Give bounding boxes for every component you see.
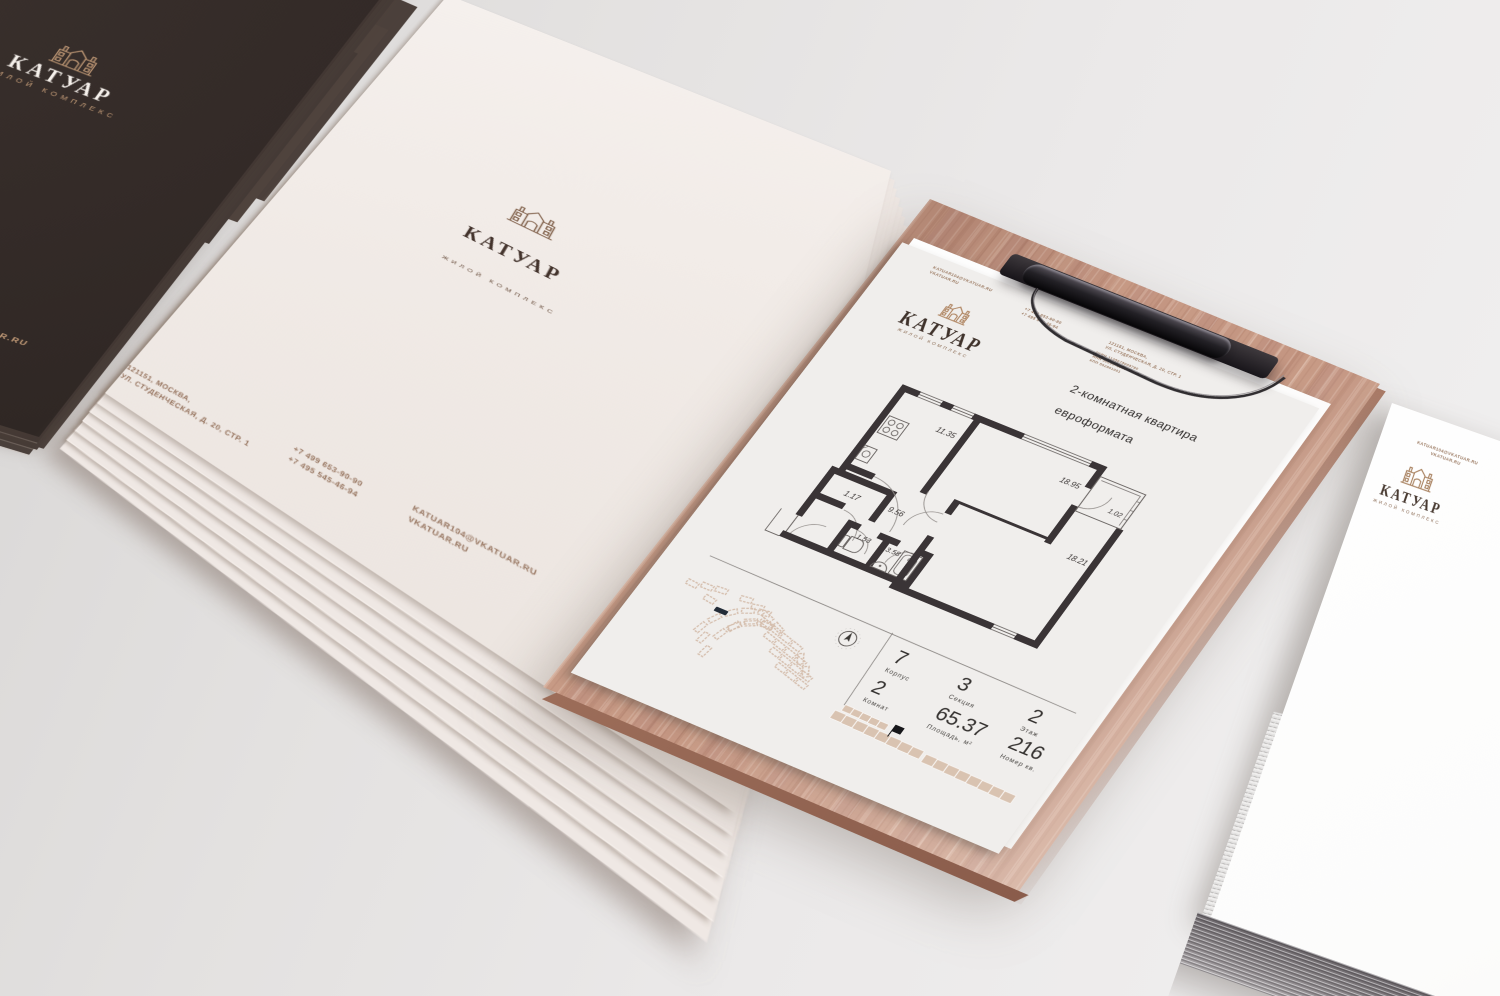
svg-text:3.58: 3.58 — [884, 546, 903, 558]
svg-text:1.17: 1.17 — [842, 489, 863, 503]
svg-text:9.56: 9.56 — [886, 505, 907, 519]
svg-text:1.53: 1.53 — [854, 533, 872, 545]
svg-text:18.21: 18.21 — [1065, 552, 1090, 567]
